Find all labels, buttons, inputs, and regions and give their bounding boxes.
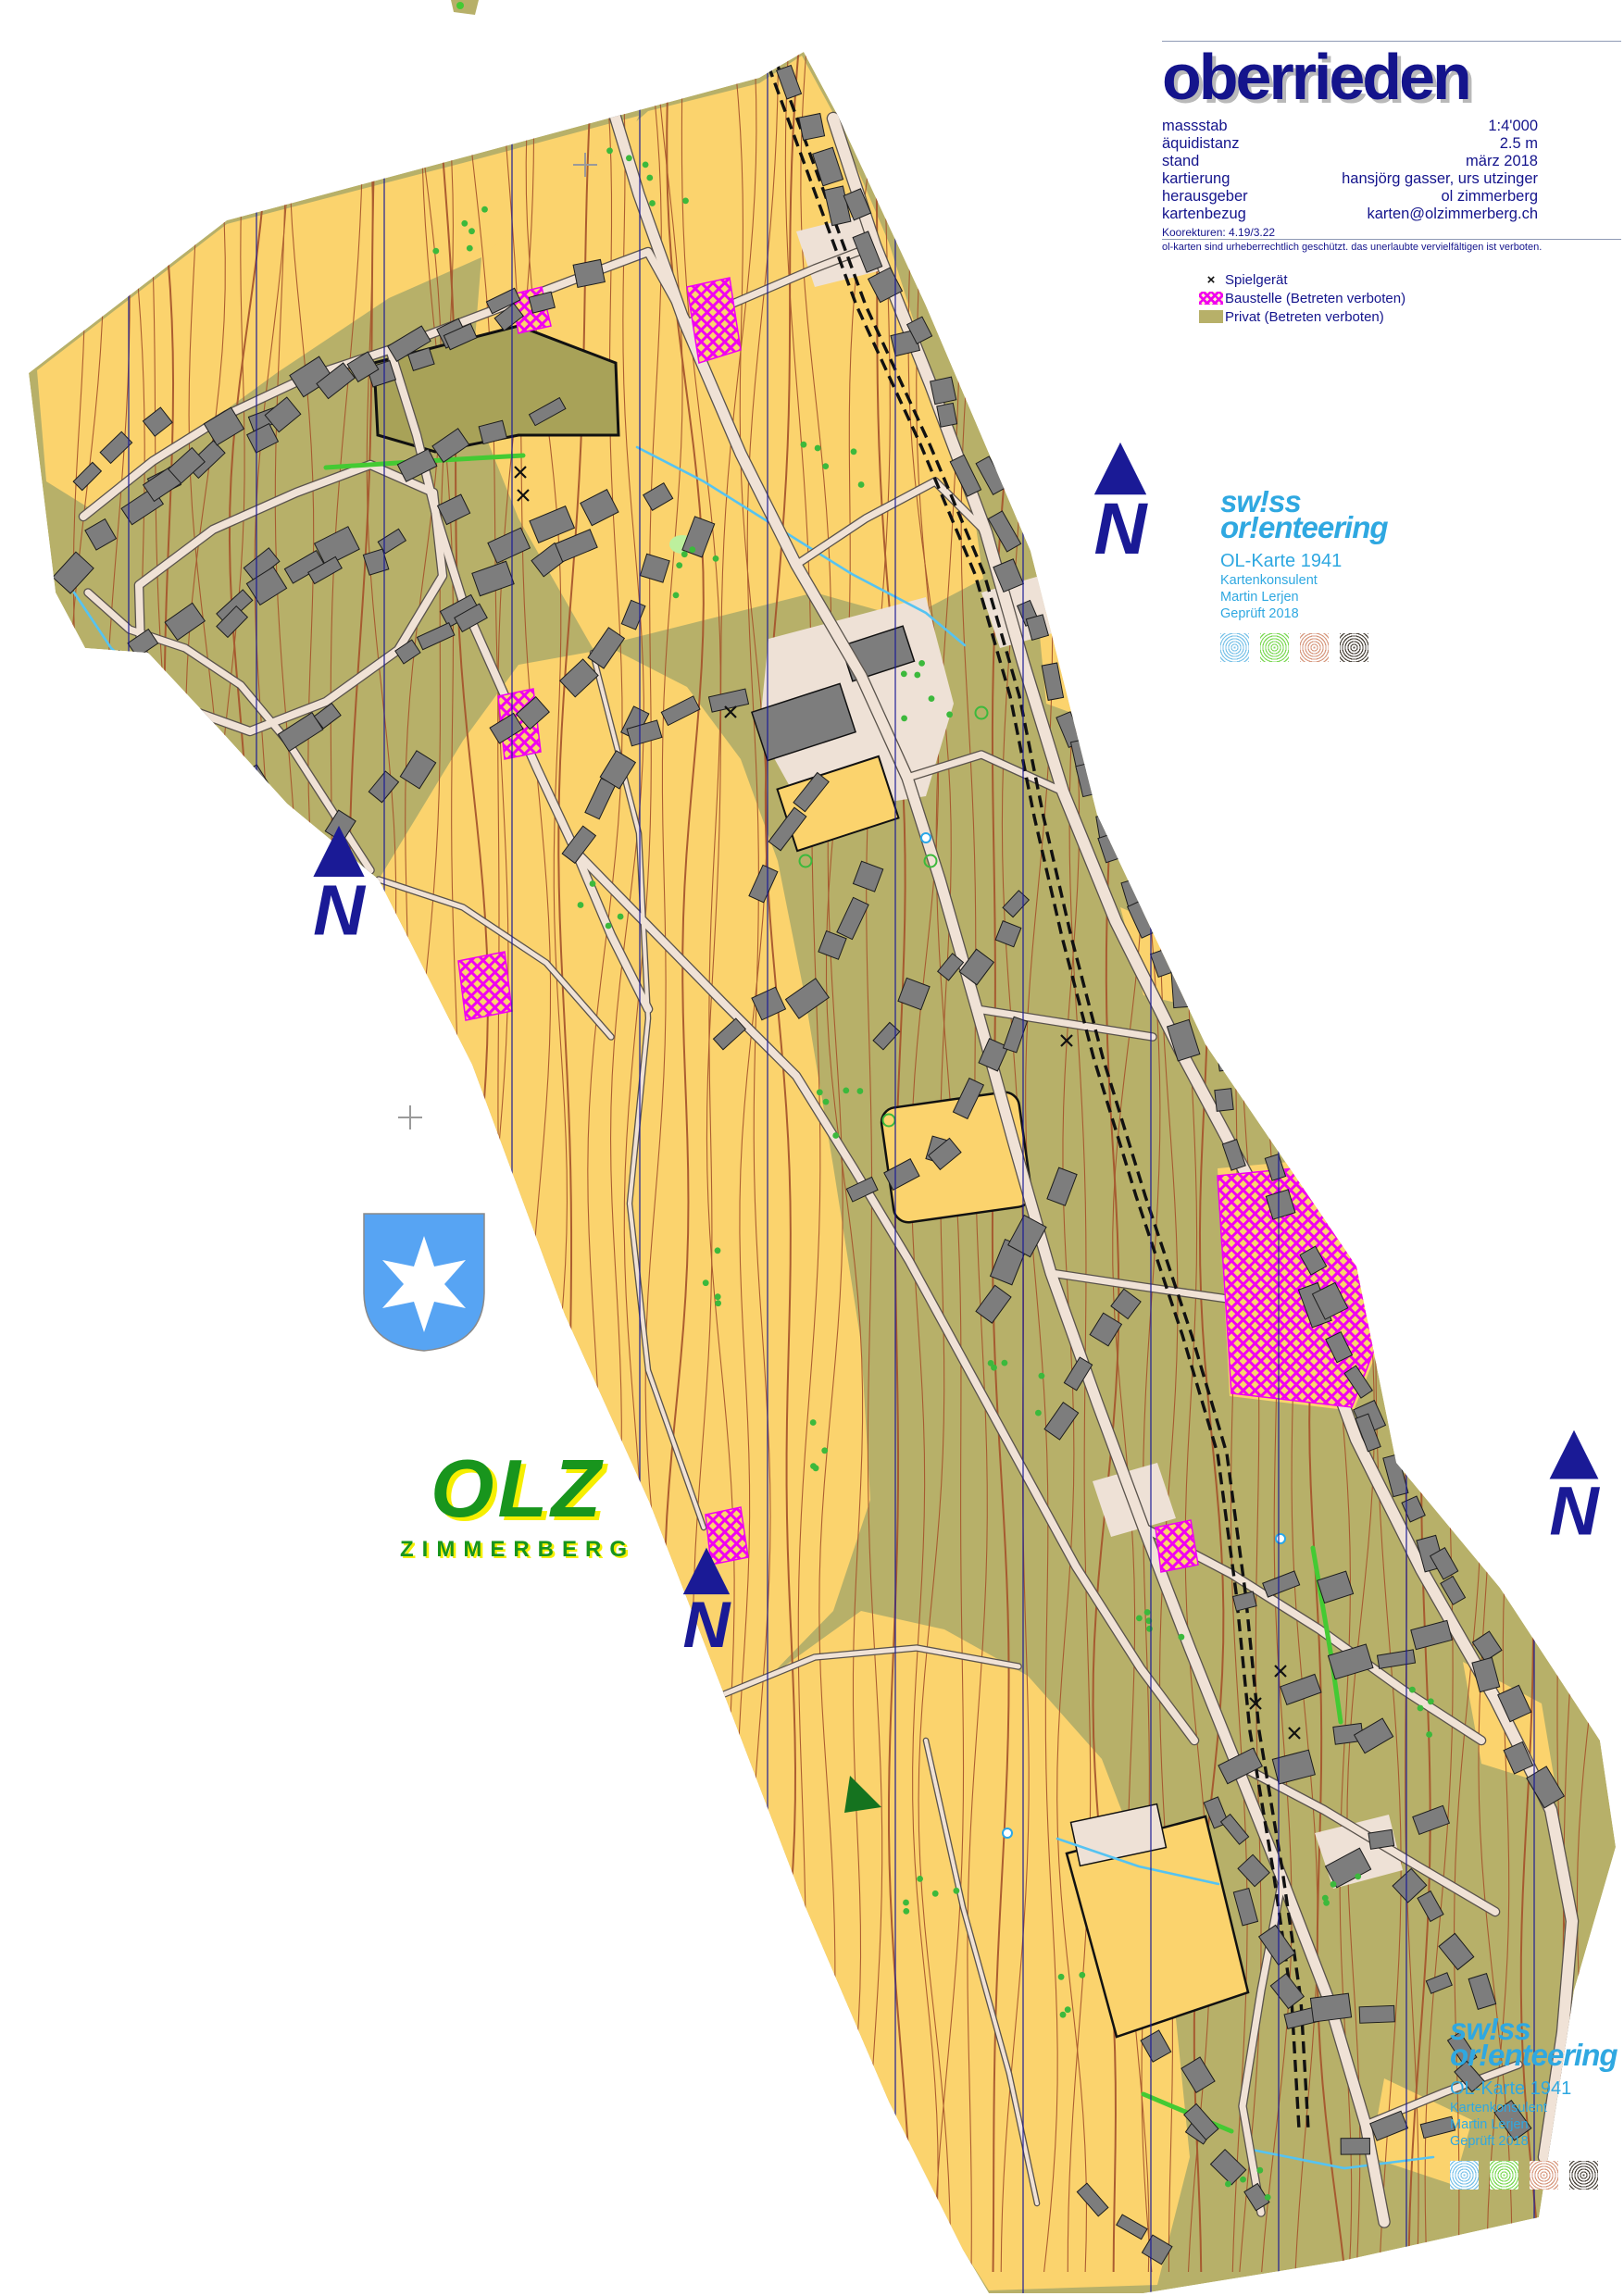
ol-karte-number: OL-Karte 1941: [1220, 551, 1415, 572]
page: NNNN oberrieden massstab1:4'000äquidista…: [0, 0, 1624, 2296]
logo-line2: or!enteering: [1450, 2042, 1624, 2068]
vegetation-strip: [815, 2148, 889, 2177]
map-legend: ×SpielgerätBaustelle (Betreten verboten)…: [1197, 270, 1405, 326]
baustelle-swatch-icon: [1197, 292, 1225, 305]
olz-zimmerberg-logo: OLZ ZIMMERBERG: [383, 1450, 652, 1563]
metadata-value: ol zimmerberg: [1441, 188, 1538, 206]
divider: [1162, 239, 1621, 240]
konsulent-name: Martin Lerjen: [1220, 589, 1415, 605]
metadata-row: kartierunghansjörg gasser, urs utzinger: [1162, 170, 1538, 188]
swiss-orienteering-logo: sw!ss or!enteering: [1220, 489, 1415, 542]
print-calibration-swatches: [1220, 633, 1415, 662]
moire-swatch-blue: [1220, 633, 1249, 662]
konsulent-label: Kartenkonsulent: [1220, 572, 1415, 589]
privat-swatch-icon: [1197, 310, 1225, 323]
svg-text:N: N: [1549, 1472, 1600, 1549]
register-cross: [398, 1105, 422, 1129]
metadata-row: herausgeberol zimmerberg: [1162, 188, 1538, 206]
north-arrow-icon: N: [1093, 443, 1148, 569]
legend-item: Privat (Betreten verboten): [1197, 307, 1405, 326]
north-arrow-icon: N: [1549, 1430, 1600, 1550]
konsulent-name: Martin Lerjen: [1450, 2116, 1624, 2133]
thicket-patch: [859, 2163, 893, 2192]
print-calibration-swatches: [1450, 2161, 1624, 2190]
metadata-label: kartenbezug: [1162, 206, 1246, 223]
fountain-marker: [1003, 1828, 1012, 1838]
fountain-marker: [921, 833, 931, 842]
legend-label: Baustelle (Betreten verboten): [1225, 291, 1405, 306]
moire-swatch-black: [1569, 2161, 1598, 2190]
metadata-label: kartierung: [1162, 170, 1230, 188]
svg-text:N: N: [1093, 488, 1148, 569]
moire-swatch-brown: [1300, 633, 1329, 662]
zimmerberg-wordmark: ZIMMERBERG: [383, 1537, 652, 1563]
moire-swatch-brown: [1530, 2161, 1558, 2190]
geprueft-year: Geprüft 2018: [1450, 2133, 1624, 2150]
metadata-label: herausgeber: [1162, 188, 1248, 206]
title-block: oberrieden massstab1:4'000äquidistanz2.5…: [1162, 41, 1621, 253]
logo-line2: or!enteering: [1220, 515, 1415, 541]
map-content: [12, 0, 1624, 2296]
metadata-label: massstab: [1162, 118, 1228, 135]
orienteering-map-canvas: NNNN: [0, 0, 1624, 2296]
light-green-patch: [555, 1705, 603, 1729]
copyright-note: ol-karten sind urheberrechtlich geschütz…: [1162, 242, 1621, 253]
swiss-orienteering-block-bottom: sw!ss or!enteering OL-Karte 1941 Kartenk…: [1450, 2016, 1624, 2190]
metadata-value: karten@olzimmerberg.ch: [1367, 206, 1538, 223]
baustelle-area: [1156, 1520, 1198, 1572]
map-title: oberrieden: [1162, 44, 1621, 112]
metadata-label: äquidistanz: [1162, 135, 1239, 153]
svg-text:N: N: [683, 1588, 732, 1661]
swiss-orienteering-block-top: sw!ss or!enteering OL-Karte 1941 Kartenk…: [1220, 489, 1415, 662]
metadata-value: märz 2018: [1466, 153, 1538, 170]
geprueft-year: Geprüft 2018: [1220, 605, 1415, 622]
konsulent-label: Kartenkonsulent: [1450, 2100, 1624, 2116]
olz-wordmark: OLZ: [383, 1450, 652, 1528]
metadata-label: stand: [1162, 153, 1199, 170]
swiss-orienteering-logo: sw!ss or!enteering: [1450, 2016, 1624, 2069]
svg-text:N: N: [313, 871, 367, 951]
corrections-note: Koorekturen: 4.19/3.22: [1162, 226, 1621, 239]
moire-swatch-blue: [1450, 2161, 1479, 2190]
ol-karte-number: OL-Karte 1941: [1450, 2078, 1624, 2100]
legend-item: Baustelle (Betreten verboten): [1197, 289, 1405, 307]
baustelle-area: [706, 1507, 748, 1565]
moire-swatch-green: [1490, 2161, 1518, 2190]
legend-item: ×Spielgerät: [1197, 270, 1405, 289]
moire-swatch-black: [1340, 633, 1368, 662]
map-metadata: massstab1:4'000äquidistanz2.5 mstandmärz…: [1162, 118, 1538, 223]
legend-label: Spielgerät: [1225, 272, 1288, 288]
metadata-row: standmärz 2018: [1162, 153, 1538, 170]
metadata-row: massstab1:4'000: [1162, 118, 1538, 135]
fountain-marker: [1276, 1534, 1285, 1543]
baustelle-area: [458, 952, 512, 1020]
metadata-value: hansjörg gasser, urs utzinger: [1342, 170, 1538, 188]
metadata-row: kartenbezugkarten@olzimmerberg.ch: [1162, 206, 1538, 223]
map-edge-sliver: [451, 0, 479, 15]
legend-label: Privat (Betreten verboten): [1225, 309, 1384, 325]
oberrieden-coat-of-arms: [356, 1206, 492, 1356]
metadata-value: 2.5 m: [1500, 135, 1538, 153]
metadata-row: äquidistanz2.5 m: [1162, 135, 1538, 153]
metadata-value: 1:4'000: [1488, 118, 1538, 135]
moire-swatch-green: [1260, 633, 1289, 662]
spielgeraet-x-icon: ×: [1197, 272, 1225, 288]
